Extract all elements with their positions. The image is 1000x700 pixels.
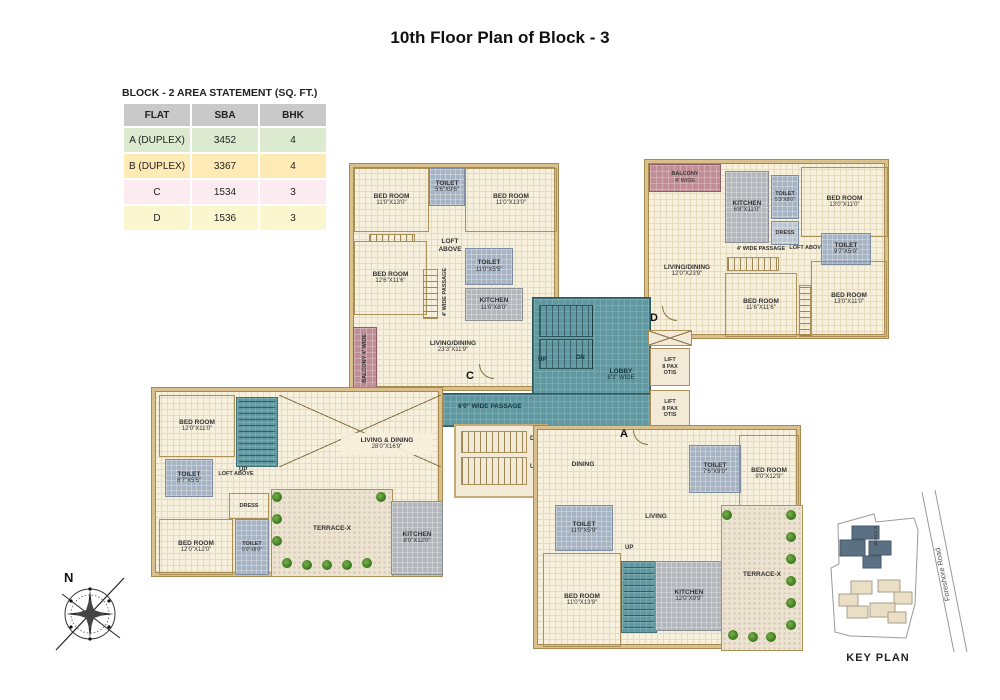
room-dress: DRESS — [229, 493, 269, 519]
area-table-heading: BLOCK - 2 AREA STATEMENT (SQ. FT.) — [122, 87, 317, 99]
room-dims: 8'3" WIDE — [607, 375, 634, 382]
plant-icon — [728, 630, 738, 640]
passage-label: 4' WIDE PASSAGE — [723, 243, 799, 255]
room-label: TERRACE-X — [743, 571, 781, 579]
room-dims: 13'0"X11'0" — [829, 202, 859, 209]
stair-flight — [239, 400, 275, 462]
room-dims: 12'0"X9'9" — [675, 596, 702, 603]
plant-icon — [766, 632, 776, 642]
lift-label: LIFT — [664, 357, 676, 364]
room-dims: 9'7"X5'0" — [834, 249, 858, 256]
lift-label: OTIS — [664, 370, 677, 377]
room-bedroom: BED ROOM 11'0"X13'0" — [354, 168, 429, 232]
col-bhk: BHK — [260, 104, 326, 126]
sba-cell: 3452 — [192, 128, 258, 152]
room-dims: 5'6"X9'6" — [435, 187, 459, 194]
room-label: LOFT ABOVE — [789, 245, 824, 252]
compass-rose: N — [50, 566, 130, 654]
key-plan: BLOCK 3 Foreshore Road KEY PLAN — [818, 486, 996, 676]
dining-label: DINING — [553, 457, 613, 473]
unit-a: DINING TOILET 7'6"X9'0" BED ROOM 9'0"X12… — [534, 426, 800, 648]
stair-flight — [624, 564, 654, 628]
room-toilet: TOILET 8'7"X5'5" — [165, 459, 213, 497]
room-label: TOILET — [704, 462, 727, 470]
plant-icon — [748, 632, 758, 642]
room-dims: 13'0"X11'0" — [834, 299, 864, 306]
lobby-label: LOBBY 8'3" WIDE — [596, 365, 646, 385]
lift-label: OTIS — [664, 412, 677, 419]
room-label: KITCHEN — [403, 531, 432, 539]
room-label: LIVING/DINING — [430, 340, 476, 348]
unit-c: BED ROOM 11'0"X13'0" TOILET 5'6"X9'6" BE… — [350, 164, 558, 390]
stair-duplex — [236, 397, 278, 467]
room-toilet: TOILET 11'0"X5'5" — [465, 248, 513, 285]
room-label: LOBBY — [610, 368, 633, 376]
terrace-label: TERRACE-X — [304, 522, 360, 536]
room-dims: 11'0"X5'5" — [476, 267, 503, 274]
plant-icon — [272, 514, 282, 524]
flat-cell: C — [124, 180, 190, 204]
living-label: LIVING — [631, 509, 681, 525]
room-label: BED ROOM — [179, 419, 215, 427]
room-toilet: TOILET 7'6"X9'0" — [689, 445, 741, 493]
room-bedroom: BED ROOM 11'0"X13'9" — [543, 553, 621, 647]
bhk-cell: 4 — [260, 154, 326, 178]
balcony: BALCONY 4' WIDE — [353, 327, 377, 389]
room-label: BED ROOM — [493, 193, 529, 201]
room-label: TOILET — [835, 242, 858, 250]
room-dims: 12'0"X11'0" — [182, 426, 212, 433]
room-bedroom: BED ROOM 13'0"X11'0" — [801, 167, 888, 237]
loft-above-label: LOFT ABOVE — [215, 465, 257, 483]
bhk-cell: 4 — [260, 128, 326, 152]
room-dims: 8'0"X12'0" — [403, 538, 430, 545]
room-dims: 7'6"X9'0" — [703, 469, 727, 476]
lift-1: LIFT 8 PAX OTIS — [650, 348, 690, 386]
plant-icon — [786, 554, 796, 564]
col-sba: SBA — [192, 104, 258, 126]
stair-flight — [539, 339, 593, 369]
room-label: TOILET — [775, 191, 794, 198]
stair-up-label: UP — [538, 357, 546, 363]
room-label: LOFT ABOVE — [431, 238, 469, 254]
lift-lobby-cross — [648, 330, 692, 346]
compass-north-label: N — [64, 570, 73, 585]
room-label: LIVING & DINING — [361, 437, 414, 445]
room-kitchen: KITCHEN 8'0"X12'0" — [391, 501, 443, 575]
table-row: D 1536 3 — [124, 206, 326, 230]
room-dims: 12'6"X11'6" — [375, 278, 405, 285]
room-label: TERRACE-X — [313, 525, 351, 533]
room-bedroom: BED ROOM 12'6"X11'6" — [354, 241, 427, 315]
room-label: TOILET — [478, 259, 501, 267]
plant-icon — [342, 560, 352, 570]
plant-icon — [282, 558, 292, 568]
plant-icon — [786, 620, 796, 630]
room-label: TOILET — [178, 471, 201, 479]
room-label: BED ROOM — [743, 298, 779, 306]
plant-icon — [322, 560, 332, 570]
core-passage: 6'0" WIDE PASSAGE — [437, 394, 652, 426]
flat-cell: A (DUPLEX) — [124, 128, 190, 152]
living-dining-label: LIVING/DINING 23'3"X11'9" — [408, 337, 498, 357]
plant-icon — [786, 532, 796, 542]
living-dining-label: LIVING & DINING 28'0"X16'9" — [341, 433, 433, 455]
stair-flight — [461, 457, 527, 485]
road-label: Foreshore Road — [933, 547, 952, 602]
room-label: BED ROOM — [564, 593, 600, 601]
room-label: BALCONY 4' WIDE — [362, 334, 369, 383]
terrace-label: TERRACE-X — [736, 568, 788, 582]
stair-hatch — [423, 269, 438, 319]
table-header-row: FLAT SBA BHK — [124, 104, 326, 126]
room-label: KITCHEN — [480, 297, 509, 305]
bhk-cell: 3 — [260, 180, 326, 204]
door-label-c: C — [466, 370, 474, 382]
room-bedroom: BED ROOM 12'0"X12'0" — [159, 519, 233, 575]
passage-label: 6'0" WIDE PASSAGE — [458, 403, 522, 410]
lift-2: LIFT 8 PAX OTIS — [650, 390, 690, 428]
loft-above-label: LOFT ABOVE — [789, 239, 825, 257]
passage-label: 4' WIDE PASSAGE — [439, 261, 451, 323]
stair-duplex — [621, 561, 657, 633]
lift-label: 8 PAX — [662, 406, 678, 413]
room-dims: 6'8"X11'0" — [734, 207, 761, 214]
room-label: 4' WIDE PASSAGE — [737, 246, 785, 253]
room-bedroom: BED ROOM 12'0"X11'0" — [159, 395, 235, 457]
room-dims: 11'0"X8'0" — [481, 305, 508, 312]
room-dims: 8'7"X5'5" — [177, 478, 201, 485]
lift-label: LIFT — [664, 399, 676, 406]
room-label: BED ROOM — [831, 292, 867, 300]
room-dims: 28'0"X16'9" — [372, 444, 403, 451]
room-label: BED ROOM — [374, 193, 410, 201]
plant-icon — [786, 510, 796, 520]
plant-icon — [362, 558, 372, 568]
living-dining-label: LIVING/DINING 12'0"X23'9" — [651, 259, 723, 283]
door-label-d: D — [650, 312, 658, 324]
room-label: KITCHEN — [675, 589, 704, 597]
room-label: KITCHEN — [733, 200, 762, 208]
flat-cell: D — [124, 206, 190, 230]
plant-icon — [302, 560, 312, 570]
door-label-a: A — [620, 428, 628, 440]
room-dims: 11'0"X13'0" — [376, 200, 406, 207]
room-dims: 4' WIDE — [675, 178, 695, 185]
room-label: TOILET — [242, 541, 261, 548]
plant-icon — [272, 536, 282, 546]
room-label: LIVING/DINING — [664, 264, 710, 272]
table-row: B (DUPLEX) 3367 4 — [124, 154, 326, 178]
stair-flight — [539, 305, 593, 337]
plant-icon — [722, 510, 732, 520]
room-bedroom: BED ROOM 13'0"X11'0" — [811, 261, 887, 337]
room-dims: 12'0"X23'9" — [672, 271, 703, 278]
unit-b: BED ROOM 12'0"X11'0" UP LIVING & DINING … — [152, 388, 442, 576]
room-dims: 11'0"X13'0" — [496, 200, 526, 207]
room-toilet: TOILET 5'0"X8'0" — [235, 519, 269, 575]
bhk-cell: 3 — [260, 206, 326, 230]
table-row: A (DUPLEX) 3452 4 — [124, 128, 326, 152]
core-lobby-area: UP DN LOBBY 8'3" WIDE — [533, 298, 650, 398]
room-dims: 11'0"X5'9" — [571, 528, 598, 535]
unit-d: BALCONY 4' WIDE KITCHEN 6'8"X11'0" TOILE… — [645, 160, 888, 338]
room-toilet: TOILET 5'6"X9'6" — [429, 168, 465, 206]
stair-dn-label: DN — [576, 355, 585, 361]
loft-above-label: LOFT ABOVE — [431, 237, 469, 255]
table-row: C 1534 3 — [124, 180, 326, 204]
floor-plan-page: 10th Floor Plan of Block - 3 BLOCK - 2 A… — [0, 0, 1000, 700]
plant-icon — [786, 598, 796, 608]
room-dims: 9'0"X12'9" — [755, 474, 782, 481]
room-kitchen: KITCHEN 11'0"X8'0" — [465, 288, 523, 321]
room-label: TOILET — [436, 180, 459, 188]
room-dims: 11'0"X13'9" — [567, 600, 597, 607]
room-label: TOILET — [573, 521, 596, 529]
room-label: BALCONY — [671, 171, 698, 178]
sba-cell: 1536 — [192, 206, 258, 230]
room-toilet: TOILET 5'3"X8'0" — [771, 175, 799, 219]
page-title: 10th Floor Plan of Block - 3 — [0, 28, 1000, 48]
plant-icon — [786, 576, 796, 586]
keyplan-block-label: BLOCK 3 — [873, 526, 878, 546]
flat-cell: B (DUPLEX) — [124, 154, 190, 178]
room-label: 4' WIDE PASSAGE — [442, 268, 449, 316]
stair-up-label: UP — [625, 545, 633, 551]
area-statement-table: FLAT SBA BHK A (DUPLEX) 3452 4 B (DUPLEX… — [122, 102, 328, 232]
room-label: DINING — [572, 461, 595, 469]
key-plan-map: BLOCK 3 Foreshore Road — [818, 486, 996, 658]
room-bedroom: BED ROOM 11'0"X13'0" — [465, 168, 557, 232]
room-dims: 5'0"X8'0" — [242, 547, 262, 553]
room-bedroom: BED ROOM 11'6"X11'6" — [725, 273, 797, 337]
balcony: BALCONY 4' WIDE — [649, 164, 721, 192]
room-label: BED ROOM — [827, 195, 863, 203]
double-height-void — [279, 395, 441, 467]
key-plan-title: KEY PLAN — [828, 652, 928, 664]
room-label: BED ROOM — [178, 540, 214, 548]
room-dims: 11'6"X11'6" — [746, 305, 776, 312]
sba-cell: 1534 — [192, 180, 258, 204]
room-toilet: TOILET 11'0"X5'9" — [555, 505, 613, 551]
room-kitchen: KITCHEN 12'0"X9'9" — [655, 561, 723, 631]
room-label: LIVING — [645, 513, 667, 521]
room-dims: 23'3"X11'9" — [438, 347, 468, 354]
room-bedroom: BED ROOM 9'0"X12'9" — [739, 435, 799, 513]
stair-flight — [461, 431, 527, 453]
room-dims: 5'3"X8'0" — [775, 197, 795, 203]
plant-icon — [376, 492, 386, 502]
sba-cell: 3367 — [192, 154, 258, 178]
room-label: DRESS — [240, 503, 259, 510]
lift-label: 8 PAX — [662, 364, 678, 371]
col-flat: FLAT — [124, 104, 190, 126]
room-label: BED ROOM — [373, 271, 409, 279]
room-label: BED ROOM — [751, 467, 787, 475]
stair-hatch — [727, 257, 779, 271]
room-dims: 12'0"X12'0" — [181, 547, 212, 554]
room-label: DRESS — [776, 230, 795, 237]
room-label: LOFT ABOVE — [218, 471, 253, 478]
stair-hatch — [799, 285, 811, 337]
room-kitchen: KITCHEN 6'8"X11'0" — [725, 171, 769, 243]
plant-icon — [272, 492, 282, 502]
